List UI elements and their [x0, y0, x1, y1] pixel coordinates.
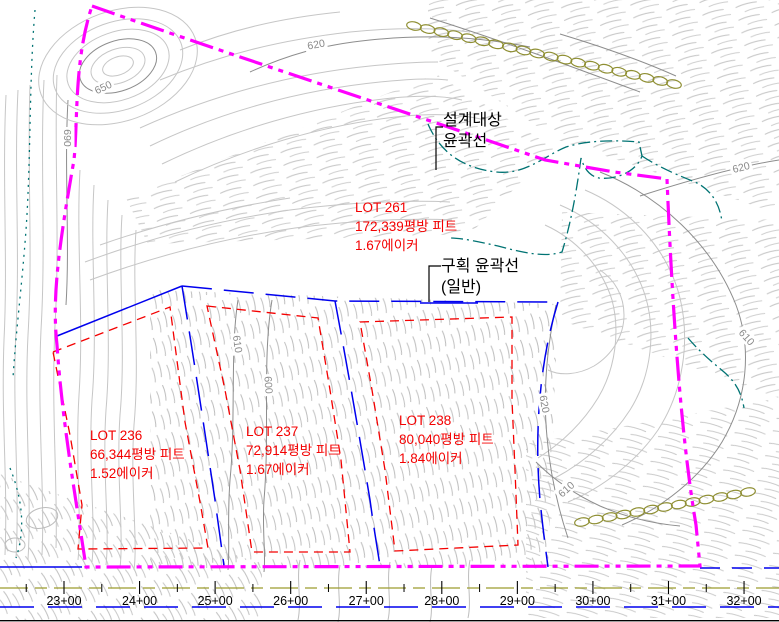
lot-id-text: LOT 238: [399, 413, 451, 428]
station-label: 24+00: [122, 594, 157, 608]
lot-acreage-text: 1.52에이커: [90, 466, 154, 481]
contour-label: 690: [61, 127, 75, 149]
station-label: 23+00: [46, 594, 81, 608]
lot-area-text: 172,339평방 피트: [355, 219, 457, 234]
design-outline-label-line2: 윤곽선: [443, 132, 487, 150]
contour-label-text: 600: [261, 376, 274, 394]
lot-acreage-text: 1.67에이커: [246, 462, 310, 477]
parcel-outline-label-line1: 구획 윤곽선: [441, 257, 519, 275]
site-plan-canvas: 23+0024+0025+0026+0027+0028+0029+0030+00…: [0, 0, 779, 622]
contour-label: 600: [261, 374, 276, 397]
station-label: 28+00: [424, 594, 459, 608]
station-label: 31+00: [651, 594, 686, 608]
station-label: 32+00: [726, 594, 761, 608]
contour-lines: [0, 0, 779, 622]
lot-id-text: LOT 236: [90, 428, 142, 443]
contour-hatch-bottom-right: [526, 398, 779, 618]
contour-label-text: 690: [61, 129, 73, 147]
lot-area-text: 80,040평방 피트: [399, 432, 494, 447]
contour-label-text: 610: [230, 335, 244, 354]
station-label: 27+00: [349, 594, 384, 608]
lot-area-text: 72,914평방 피트: [246, 443, 341, 458]
parcel-outline-leader: [429, 266, 441, 302]
contour-hatch-center: [150, 290, 558, 568]
station-label: 29+00: [500, 594, 535, 608]
chain-link-icon: [406, 20, 422, 31]
station-label: 25+00: [198, 594, 233, 608]
lot-acreage-text: 1.67에이커: [355, 238, 419, 253]
station-label: 30+00: [575, 594, 610, 608]
contour-label-text: 620: [306, 38, 325, 53]
lot-id-text: LOT 261: [355, 200, 407, 215]
contour-hatch-right: [560, 212, 779, 398]
lot-acreage-text: 1.84에이커: [399, 451, 463, 466]
site-plan-drawing: 23+0024+0025+0026+0027+0028+0029+0030+00…: [0, 0, 779, 622]
lot-area-text: 66,344평방 피트: [90, 447, 185, 462]
parcel-outline-label-line2: (일반): [441, 278, 481, 296]
lot-id-text: LOT 237: [246, 424, 298, 439]
station-label: 26+00: [273, 594, 308, 608]
design-outline-label-line1: 설계대상: [443, 111, 502, 129]
